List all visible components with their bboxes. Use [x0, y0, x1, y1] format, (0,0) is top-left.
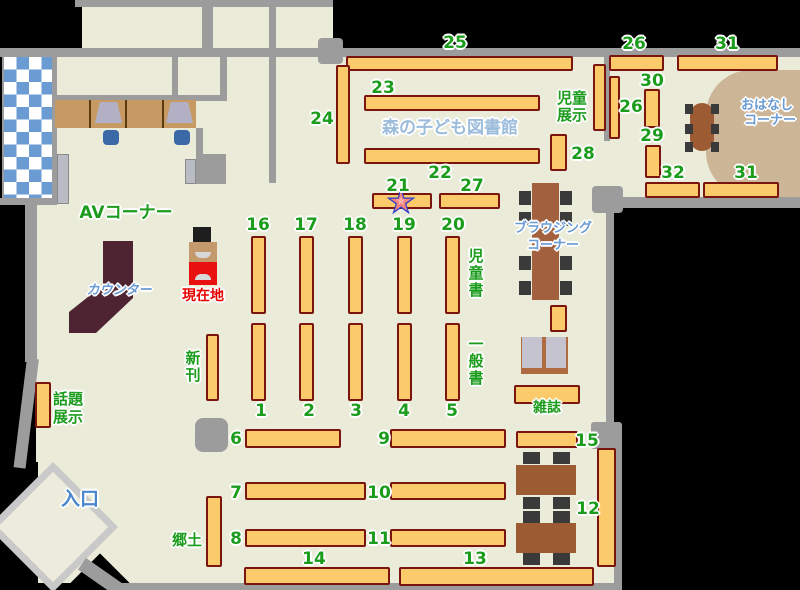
shelf-23-label: 23	[371, 79, 395, 98]
shelf-31-top-label: 31	[715, 35, 739, 54]
shelf-5-label: 5	[446, 402, 458, 421]
current-location-label: 現在地	[182, 289, 224, 304]
shelf-7	[245, 482, 366, 500]
shelf-11-label: 11	[367, 530, 391, 549]
shelf-24	[336, 65, 350, 164]
shelf-25-label: 25	[443, 34, 467, 53]
shelf-2	[299, 323, 314, 401]
story-chair	[711, 104, 719, 114]
reading-chair	[553, 511, 570, 523]
story-corner-label-line2: コーナー	[744, 114, 796, 128]
pillar-top	[318, 38, 343, 64]
shelf-5	[445, 323, 460, 401]
wall-room-divider-3	[172, 57, 178, 95]
magazines-label: 雑誌	[533, 401, 561, 416]
map-title: 森の子ども図書館	[382, 119, 518, 138]
browsing-chair	[560, 191, 572, 205]
av-desk-divider	[162, 100, 164, 128]
shelf-19-label: 19	[392, 216, 416, 235]
counter-label: カウンター	[86, 284, 151, 298]
shelf-19	[397, 236, 412, 314]
wall-room-divider-1	[202, 0, 213, 50]
shelf-16	[251, 236, 266, 314]
story-chair	[711, 142, 719, 152]
shelf-13-label: 13	[463, 550, 487, 569]
library-floor-map: 25 23 24 22 21 27 26 31 30 26 29 28 32 3…	[0, 0, 800, 590]
shelf-14-label: 14	[302, 550, 326, 569]
shelf-8	[245, 529, 366, 547]
story-chair	[685, 142, 693, 152]
shelf-16-label: 16	[246, 216, 270, 235]
reading-table	[516, 465, 576, 495]
browsing-chair	[519, 256, 531, 270]
newspaper-rack-panel	[546, 337, 566, 368]
shelf-14	[244, 567, 390, 585]
shelf-32-label: 32	[661, 164, 685, 183]
shelf-10-label: 10	[367, 484, 391, 503]
checkered-area	[2, 57, 52, 198]
av-corner-label: AVコーナー	[79, 204, 172, 223]
shelf-28-label: 28	[571, 145, 595, 164]
story-chair	[685, 124, 693, 134]
shelf-12-label: 12	[576, 500, 600, 519]
reading-chair	[553, 553, 570, 565]
shelf-4	[397, 323, 412, 401]
shelf-9	[390, 429, 506, 448]
shelf-31-bottom	[703, 182, 779, 198]
shelf-26-top-label: 26	[622, 35, 646, 54]
shelf-24-label: 24	[310, 110, 334, 129]
reading-table	[516, 523, 576, 553]
shelf-27-label: 27	[460, 177, 484, 196]
shelf-1	[251, 323, 266, 401]
kiosk-top	[193, 227, 211, 242]
av-chair	[103, 130, 119, 145]
shelf-13	[399, 567, 594, 586]
topic-display-label-line2: 展示	[53, 409, 83, 426]
browsing-chair	[519, 281, 531, 295]
story-chair	[711, 124, 719, 134]
shelf-31-top	[677, 55, 778, 71]
shelf-11	[390, 529, 506, 547]
shelf-topic-display	[35, 382, 51, 428]
shelf-1-label: 1	[255, 402, 267, 421]
shelf-18	[348, 236, 363, 314]
shelf-new-books	[206, 334, 219, 401]
reading-chair	[523, 511, 540, 523]
floor-main-upper	[55, 57, 607, 204]
shelf-6-label: 6	[230, 430, 242, 449]
reading-chair	[523, 452, 540, 464]
entrance-label: 入口	[61, 489, 99, 510]
av-chair	[174, 130, 190, 145]
av-desk-divider	[89, 100, 91, 128]
shelf-15	[516, 431, 578, 448]
topic-display-label-line1: 話題	[53, 391, 83, 408]
shelf-8-label: 8	[230, 530, 242, 549]
av-desk-divider	[125, 100, 127, 128]
shelf-browsing-side	[550, 305, 567, 332]
reading-chair	[553, 452, 570, 464]
shelf-32	[645, 182, 700, 198]
shelf-29-label: 29	[640, 127, 664, 146]
wall-room-divider-2	[269, 7, 276, 183]
browsing-chair	[519, 191, 531, 205]
wall-east-upper	[606, 208, 614, 428]
browsing-chair	[560, 256, 572, 270]
shelf-15-label: 15	[575, 432, 599, 451]
door-east	[185, 159, 196, 184]
wall-room-divider-4	[220, 57, 227, 100]
kids-display-label-line1: 児童	[557, 90, 587, 107]
pillar-center	[195, 418, 228, 452]
shelf-17-label: 17	[294, 216, 318, 235]
door-west	[57, 154, 69, 204]
shelf-10	[390, 482, 506, 500]
shelf-20-label: 20	[441, 216, 465, 235]
childrens-books-label: 児童書	[467, 248, 484, 299]
reading-chair	[553, 497, 570, 509]
shelf-26-vertical-label: 26	[619, 98, 643, 117]
shelf-26-top	[609, 55, 664, 71]
shelf-4-label: 4	[398, 402, 410, 421]
shelf-29	[645, 145, 661, 178]
shelf-22	[364, 148, 540, 164]
wall-west	[25, 204, 37, 362]
shelf-20	[445, 236, 460, 314]
floor-staff-room-a	[82, 7, 202, 48]
browsing-chair	[560, 281, 572, 295]
browsing-corner-label-line2: コーナー	[527, 239, 579, 253]
shelf-21-label: 21	[386, 177, 410, 196]
shelf-local-history	[206, 496, 222, 567]
wall-block-av	[198, 154, 226, 184]
shelf-31-bottom-label: 31	[734, 164, 758, 183]
story-corner-label-line1: おはなし	[741, 99, 793, 113]
newspaper-rack-panel	[522, 337, 542, 368]
new-books-label: 新刊	[184, 350, 201, 384]
kids-display-label-line2: 展示	[557, 107, 587, 124]
shelf-28	[550, 134, 567, 171]
shelf-6	[245, 429, 341, 448]
shelf-3-label: 3	[350, 402, 362, 421]
wall-wing-bottom	[600, 197, 800, 208]
shelf-2-label: 2	[303, 402, 315, 421]
shelf-7-label: 7	[230, 484, 242, 503]
browsing-corner-label-line1: ブラウジング	[514, 222, 592, 236]
general-books-label: 一般書	[467, 336, 484, 387]
reading-chair	[523, 553, 540, 565]
shelf-30-label: 30	[640, 72, 664, 91]
shelf-17	[299, 236, 314, 314]
shelf-25	[346, 56, 573, 71]
shelf-22-label: 22	[428, 164, 452, 183]
reading-chair	[523, 497, 540, 509]
shelf-3	[348, 323, 363, 401]
kiosk-base-slot	[195, 274, 211, 280]
local-history-label: 郷土	[172, 532, 202, 549]
shelf-18-label: 18	[343, 216, 367, 235]
story-chair	[685, 104, 693, 114]
shelf-30	[644, 89, 660, 128]
shelf-9-label: 9	[378, 430, 390, 449]
shelf-unlabeled-wall	[593, 64, 606, 131]
